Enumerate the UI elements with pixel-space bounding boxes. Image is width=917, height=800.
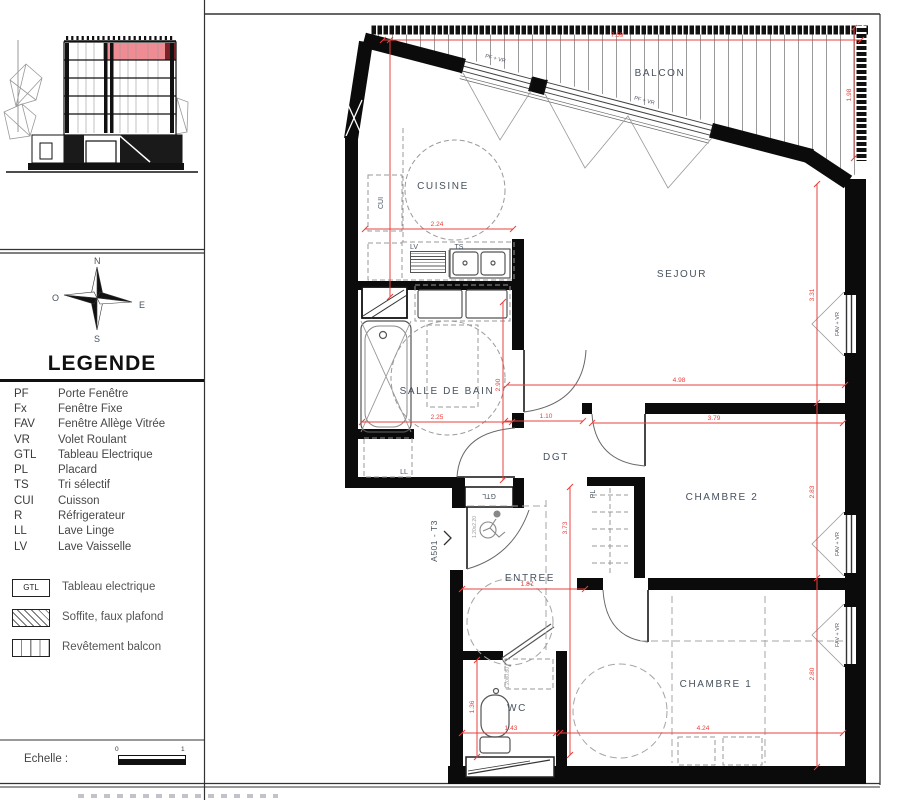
dim-ch2-w-text: 3.79: [708, 415, 721, 422]
room-label-chambre1: CHAMBRE 1: [680, 679, 753, 690]
lv-tag: LV: [410, 244, 418, 251]
scale-tick-0: 0: [115, 746, 119, 753]
dim-dgt-w-text: 1.10: [540, 413, 553, 420]
building-elevation: [0, 20, 204, 232]
scale-label: Echelle :: [24, 753, 68, 765]
legend-item: FAVFenêtre Allège Vitrée: [14, 417, 200, 432]
room-label-sejour: SEJOUR: [657, 269, 707, 280]
dim-kitchen-v: [387, 37, 393, 300]
legend-item: TSTri sélectif: [14, 478, 200, 493]
wheelchair-icon: [480, 511, 505, 538]
legend-item: PLPlacard: [14, 462, 200, 477]
dim-ch1-w-text: 4.24: [697, 725, 710, 732]
legend-title: LEGENDE: [0, 352, 204, 376]
legend-list: PFPorte Fenêtre FxFenêtre Fixe FAVFenêtr…: [14, 386, 200, 554]
dim-sdb-d-text: 2.90: [495, 378, 502, 391]
drawing-sheet: PF + VR PF + VR: [0, 0, 917, 800]
dim-ch2-d-text: 2.83: [809, 485, 816, 498]
dim-sejour-d-text: 3.31: [809, 288, 816, 301]
gtl-swatch-box: GTL: [12, 579, 50, 597]
entry-chevron-icon: [444, 531, 451, 545]
dim-ch1-d-text: 2.80: [809, 667, 816, 680]
swatch-gtl: GTL Tableau electrique: [12, 579, 202, 599]
pl-tag: PL: [590, 490, 597, 499]
cui-tag: CUI: [378, 197, 385, 209]
fav-vr-label-ch1: FAV + VR: [835, 623, 841, 647]
dim-cuisine-w-text: 2.24: [431, 221, 444, 228]
compass-n: N: [94, 256, 101, 266]
closets-guides: PL: [467, 488, 843, 765]
legend-item: VRVolet Roulant: [14, 432, 200, 447]
gtl-box: GTL: [465, 487, 513, 507]
compass-s: S: [94, 334, 100, 344]
legend-item: FxFenêtre Fixe: [14, 401, 200, 416]
ll-tag: LL: [400, 469, 408, 476]
legend-item: LVLave Vaisselle: [14, 539, 200, 554]
dim-wc-d-text: 1.36: [469, 700, 476, 713]
pf-vr-label-1: PF + VR: [484, 54, 506, 65]
soffite-swatch-box: [12, 609, 50, 627]
swatch-balcon: Revêtement balcon: [12, 639, 202, 659]
dim-sdb-w-text: 2.25: [431, 414, 444, 421]
dim-hall-d-text: 3.73: [562, 521, 569, 534]
gtl-box-label: GTL: [482, 492, 496, 499]
legend-item: GTLTableau Electrique: [14, 447, 200, 462]
dim-sejour-w-text: 4.98: [673, 377, 686, 384]
dim-balcon-d-text: 1.98: [846, 88, 853, 101]
entry-clearance: 1.20x2.20: [472, 516, 478, 538]
tree-sketch: [10, 64, 42, 106]
wc-clearance: 1.20x0.80: [505, 667, 511, 689]
title-block-panel: N S O E LEGENDE PFPorte Fenêtre FxFenêtr…: [0, 0, 204, 800]
room-label-balcon: BALCON: [635, 68, 686, 79]
fav-vr-label-sejour: FAV + VR: [835, 312, 841, 336]
dim-balcon-w-text: 7.59: [611, 32, 624, 39]
legend-item: RRéfrigerateur: [14, 508, 200, 523]
compass-o: O: [52, 293, 59, 303]
room-label-chambre2: CHAMBRE 2: [686, 492, 759, 503]
legend-item: PFPorte Fenêtre: [14, 386, 200, 401]
unit-label: A501 - T3: [429, 520, 439, 562]
room-label-wc: WC: [507, 703, 527, 714]
compass-e: E: [139, 300, 145, 310]
compass-rose: N S O E: [30, 255, 170, 345]
scale-tick-1: 1: [181, 746, 185, 753]
cropped-caption: [78, 794, 278, 798]
balcon-swatch-box: [12, 639, 50, 657]
dim-wc-w-text: 1.43: [505, 725, 518, 732]
room-label-dgt: DGT: [543, 452, 569, 463]
legend-title-rule: [0, 379, 204, 382]
room-label-cuisine: CUISINE: [417, 181, 469, 192]
swatch-soffite: Soffite, faux plafond: [12, 609, 202, 629]
ts-tag: TS: [455, 244, 464, 251]
legend-item: LLLave Linge: [14, 524, 200, 539]
bathroom-fixtures: LL: [361, 285, 510, 477]
fav-vr-label-ch2: FAV + VR: [835, 532, 841, 556]
room-label-sdb: SALLE DE BAIN: [400, 386, 495, 397]
legend-item: CUICuisson: [14, 493, 200, 508]
room-label-entree: ENTREE: [505, 573, 555, 584]
scale-bar: [118, 755, 186, 765]
dimensions: 7.59 1.98 3.31 2.83 2.80 4.98 1.10 3.79 …: [359, 25, 864, 770]
